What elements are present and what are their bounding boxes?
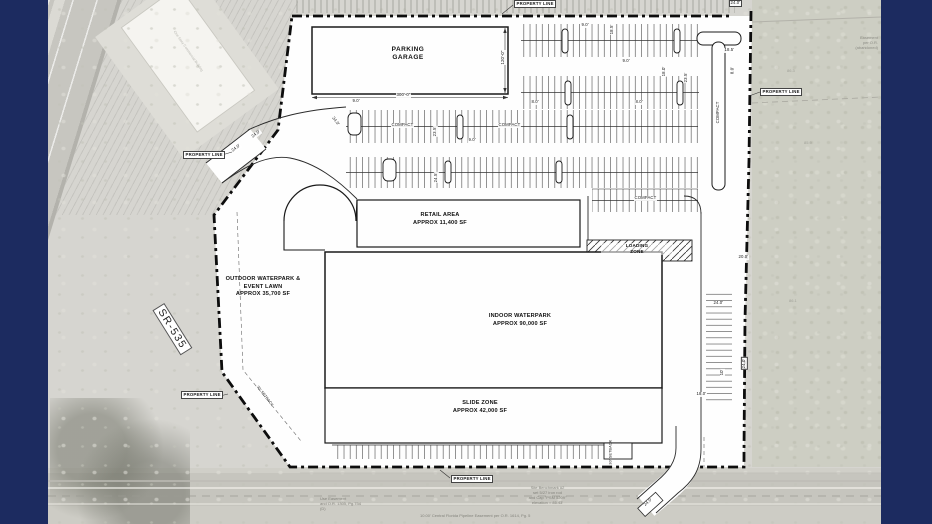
benchmark-note: Site Benchmark #2 set 5/27 iron rod and … — [505, 485, 590, 505]
slide-line1: SLIDE ZONE — [410, 400, 550, 408]
frame-bar-right — [881, 0, 932, 524]
dim-8-2: 8.0' — [635, 100, 643, 105]
indoor-waterpark-label: INDOOR WATERPARK APPROX 90,000 SF — [450, 313, 590, 328]
dim-18-2: 18.0' — [696, 392, 707, 397]
compact-label-2: COMPACT — [498, 123, 521, 128]
news-frame: PARKING GARAGE RETAIL AREA APPROX 11,400… — [0, 0, 932, 524]
dim-24-gate: 24.0' — [741, 357, 748, 370]
property-line-label-bottom: PROPERTY LINE — [451, 475, 493, 483]
compact-label-1: COMPACT — [391, 123, 414, 128]
slide-zone-outline — [325, 388, 662, 443]
slide-zone-label: SLIDE ZONE APPROX 42,000 SF — [410, 400, 550, 415]
parking-garage-label: PARKING GARAGE — [338, 46, 478, 63]
slide-line2: APPROX 42,000 SF — [410, 408, 550, 416]
dim-24-ne: 24.0' — [729, 0, 742, 7]
dim-18-5-1: 18.5' — [610, 24, 615, 35]
retail-line2: APPROX 11,400 SF — [370, 220, 510, 228]
spot-elevation-3: 86.1 — [789, 298, 797, 303]
pipeline-note: 10.00' Central Florida Pipeline Easement… — [420, 513, 530, 518]
outdoor-waterpark-label: OUTDOOR WATERPARK & EVENT LAWN APPROX 35… — [193, 276, 333, 299]
dim-20: 20.0' — [738, 255, 749, 260]
dim-24-5: 24.5' — [434, 172, 439, 183]
setback-label-south: 30' SETBACK — [609, 439, 613, 465]
parking-garage-line2: GARAGE — [338, 54, 478, 62]
retail-label: RETAIL AREA APPROX 11,400 SF — [370, 212, 510, 227]
dim-18-1: 18.0' — [662, 66, 667, 77]
dim-8-3: 8.0' — [731, 66, 736, 74]
parking-garage-outline — [312, 27, 508, 99]
dim-9-1: 9.0' — [581, 23, 589, 28]
retail-line1: RETAIL AREA — [370, 212, 510, 220]
dim-9-2: 9.0' — [622, 59, 630, 64]
compact-label-3: COMPACT — [634, 196, 657, 201]
dim-23-5-2: 23.5' — [433, 126, 438, 137]
outdoor-line1: OUTDOOR WATERPARK & — [193, 276, 333, 284]
spot-elevation-1: 86.3 — [787, 68, 795, 73]
indoor-line2: APPROX 90,000 SF — [450, 321, 590, 329]
outdoor-line3: APPROX 35,700 SF — [193, 291, 333, 299]
dim-9-3: 9.0' — [352, 99, 360, 104]
dim-23-5-1: 23.5' — [684, 72, 689, 83]
outdoor-line2: EVENT LAWN — [193, 284, 333, 292]
dim-18-5-2: 18.5' — [724, 48, 735, 53]
dim-24-east: 24.0' — [713, 301, 724, 306]
loading-line2: ZONE — [601, 249, 673, 255]
indoor-line1: INDOOR WATERPARK — [450, 313, 590, 321]
benchmark-line4: elevation = 85.43' — [505, 500, 590, 505]
use-easement-note: Use Easement and O.R. 1305, Pg.754 (D) — [320, 496, 412, 511]
property-line-label-left-upper: PROPERTY LINE — [183, 151, 225, 159]
frame-bar-left — [0, 0, 48, 524]
loading-zone-label: LOADING ZONE — [601, 243, 673, 255]
site-plan-drawing — [0, 0, 932, 524]
parking-garage-line1: PARKING — [338, 46, 478, 54]
dim-9-4: 9.0' — [468, 138, 476, 143]
compact-label-4: COMPACT — [716, 101, 721, 124]
dim-garage-depth: 120'-0" — [501, 50, 506, 65]
dim-8-1: 8.0' — [531, 100, 539, 105]
dim-garage-width: 300'-0" — [396, 93, 411, 98]
easement-note: Easement per O.R. (abandoned) — [836, 35, 878, 50]
spot-elevation-2: 85.9 — [804, 140, 812, 145]
easement-line3: (abandoned) — [836, 45, 878, 50]
use-easement-line3: (D) — [320, 506, 412, 511]
dim-10: 10' — [720, 369, 725, 376]
property-line-label-right: PROPERTY LINE — [760, 88, 802, 96]
property-line-label-left-lower: PROPERTY LINE — [181, 391, 223, 399]
property-line-label-top: PROPERTY LINE — [514, 0, 556, 8]
